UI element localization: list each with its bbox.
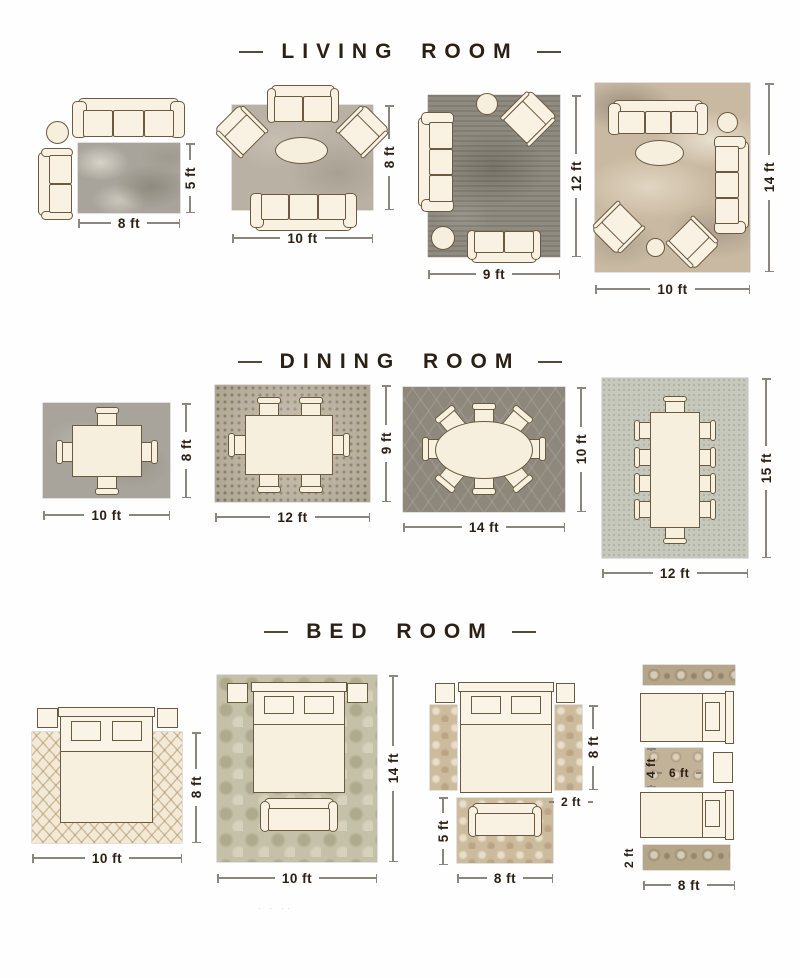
height-dimension: 5 ft: [182, 143, 198, 213]
section-title-text: DINING ROOM: [280, 350, 521, 374]
width-dimension: 12 ft: [215, 509, 370, 525]
width-dimension: 10 ft: [595, 281, 750, 297]
nightstand: [713, 752, 733, 783]
bed: [460, 683, 552, 793]
rug-size-guide: LIVING ROOM 5 ft 8 ft: [0, 0, 800, 978]
layout-living-9x12: 12 ft 9 ft: [405, 83, 595, 288]
runner-width-dimension: 2 ft: [549, 794, 593, 810]
section-title-dining-room: DINING ROOM: [0, 350, 800, 374]
mid-rug-height-dimension-label: 4 ft: [644, 751, 658, 785]
layout-bed-runners: 8 ft 2 ft 5 ft 8 ft: [425, 670, 615, 888]
rug: [78, 143, 180, 213]
foot-rug-height-dimension-label: 5 ft: [436, 813, 451, 849]
width-dimension-label: 10 ft: [650, 282, 694, 297]
side-table: [46, 121, 69, 144]
layout-bed-10x14: 14 ft 10 ft: [215, 670, 400, 885]
height-dimension: 8 ft: [188, 732, 204, 843]
sofa: [418, 112, 454, 212]
runner-rug: [555, 705, 582, 790]
width-dimension: 10 ft: [43, 507, 170, 523]
dining-table: [245, 415, 333, 475]
section-title-living-room: LIVING ROOM: [0, 40, 800, 64]
section-title-text: LIVING ROOM: [281, 40, 518, 64]
width-dimension: 14 ft: [403, 519, 565, 535]
layout-bed-twin: 4 ft 6 ft 2 ft 8 ft: [615, 655, 800, 895]
mid-rug-width-dimension: 6 ft: [657, 765, 705, 781]
height-dimension-label: 8 ft: [189, 769, 204, 805]
runner-rug: [430, 705, 457, 790]
nightstand: [435, 683, 455, 703]
dining-table: [650, 412, 700, 528]
width-dimension-label: 10 ft: [84, 508, 128, 523]
mid-rug-width-dimension-label: 6 ft: [662, 766, 696, 780]
runner-height-dimension: 8 ft: [585, 705, 601, 790]
coffee-table: [635, 140, 684, 166]
height-dimension: 8 ft: [178, 403, 194, 498]
runner-width-dimension-label: 2 ft: [554, 795, 588, 809]
width-dimension-label: 8 ft: [111, 216, 147, 231]
loveseat: [38, 148, 73, 220]
bench: [260, 798, 338, 832]
sofa: [608, 100, 708, 135]
dining-table: [72, 425, 142, 477]
section-title-bed-room: BED ROOM: [0, 620, 800, 644]
height-dimension-label: 14 ft: [386, 746, 401, 790]
sofa: [714, 136, 749, 234]
layout-bed-10x8: 8 ft 10 ft: [25, 690, 210, 870]
width-dimension: 8 ft: [643, 877, 735, 893]
bed: [60, 708, 153, 823]
layout-living-8x5: 5 ft 8 ft: [30, 95, 210, 245]
layout-dining-10x8: 8 ft 10 ft: [35, 395, 200, 525]
nightstand: [556, 683, 575, 703]
height-dimension-label: 9 ft: [379, 425, 394, 461]
layout-living-10x14: 14 ft 10 ft: [595, 78, 790, 303]
side-table: [476, 93, 498, 115]
nightstand: [37, 708, 58, 728]
width-dimension: 10 ft: [232, 230, 373, 246]
width-dimension: 12 ft: [602, 565, 748, 581]
height-dimension: 10 ft: [573, 387, 589, 512]
runner-rug: [643, 665, 735, 685]
nightstand: [347, 683, 368, 703]
height-dimension-label: 15 ft: [759, 446, 774, 490]
nightstand: [157, 708, 178, 728]
width-dimension-label: 12 ft: [270, 510, 314, 525]
height-dimension: 12 ft: [568, 95, 584, 257]
title-dash-right: [538, 361, 562, 363]
runner-rug: [643, 845, 730, 870]
runner-height-dimension-label: 8 ft: [586, 729, 601, 765]
height-dimension: 14 ft: [761, 83, 777, 272]
foot-rug-height-dimension: 5 ft: [435, 797, 451, 865]
foot-rug-width-dimension-label: 8 ft: [487, 871, 523, 886]
width-dimension: 8 ft: [78, 215, 180, 231]
bed: [640, 693, 733, 742]
width-dimension-label: 8 ft: [671, 878, 707, 893]
height-dimension-label: 10 ft: [574, 427, 589, 471]
height-dimension: 8 ft: [381, 105, 397, 210]
height-dimension-label: 14 ft: [762, 155, 777, 199]
height-dimension-label: 12 ft: [569, 154, 584, 198]
height-dimension-label: 8 ft: [382, 139, 397, 175]
layout-living-10x8: 8 ft 10 ft: [215, 85, 405, 255]
height-dimension: 14 ft: [385, 675, 401, 862]
bench: [468, 803, 542, 837]
width-dimension-label: 12 ft: [653, 566, 697, 581]
width-dimension-label: 9 ft: [476, 267, 512, 282]
dining-table: [435, 421, 533, 479]
title-dash-left: [264, 631, 288, 633]
width-dimension-label: 10 ft: [275, 871, 319, 886]
loveseat: [467, 230, 541, 263]
height-dimension-label: 8 ft: [179, 432, 194, 468]
side-table: [646, 238, 665, 257]
section-title-text: BED ROOM: [306, 620, 494, 644]
layout-dining-12x9: 9 ft 12 ft: [215, 385, 400, 530]
runner-height-dimension: 2 ft: [621, 841, 637, 873]
bed: [253, 683, 345, 793]
layout-dining-14x10: 10 ft 14 ft: [398, 385, 593, 535]
title-dash-left: [239, 51, 263, 53]
coffee-table: [275, 137, 328, 164]
height-dimension: 15 ft: [758, 378, 774, 558]
sofa: [267, 85, 339, 123]
title-dash-left: [238, 361, 262, 363]
title-dash-right: [537, 51, 561, 53]
sofa: [250, 193, 357, 231]
side-table: [431, 226, 455, 250]
layout-dining-12x15: 15 ft 12 ft: [598, 375, 788, 585]
width-dimension-label: 10 ft: [280, 231, 324, 246]
runner-height-dimension-label: 2 ft: [622, 841, 636, 875]
width-dimension-label: 14 ft: [462, 520, 506, 535]
width-dimension: 10 ft: [217, 870, 377, 886]
side-table: [717, 112, 738, 133]
sofa: [72, 98, 185, 138]
width-dimension-label: 10 ft: [85, 851, 129, 866]
width-dimension: 10 ft: [32, 850, 182, 866]
bed: [640, 792, 733, 838]
width-dimension: 9 ft: [428, 266, 560, 282]
nightstand: [227, 683, 248, 703]
height-dimension-label: 5 ft: [183, 160, 198, 196]
height-dimension: 9 ft: [378, 385, 394, 502]
title-dash-right: [512, 631, 536, 633]
foot-rug-width-dimension: 8 ft: [457, 870, 553, 886]
watermark: · · ··: [258, 903, 293, 913]
